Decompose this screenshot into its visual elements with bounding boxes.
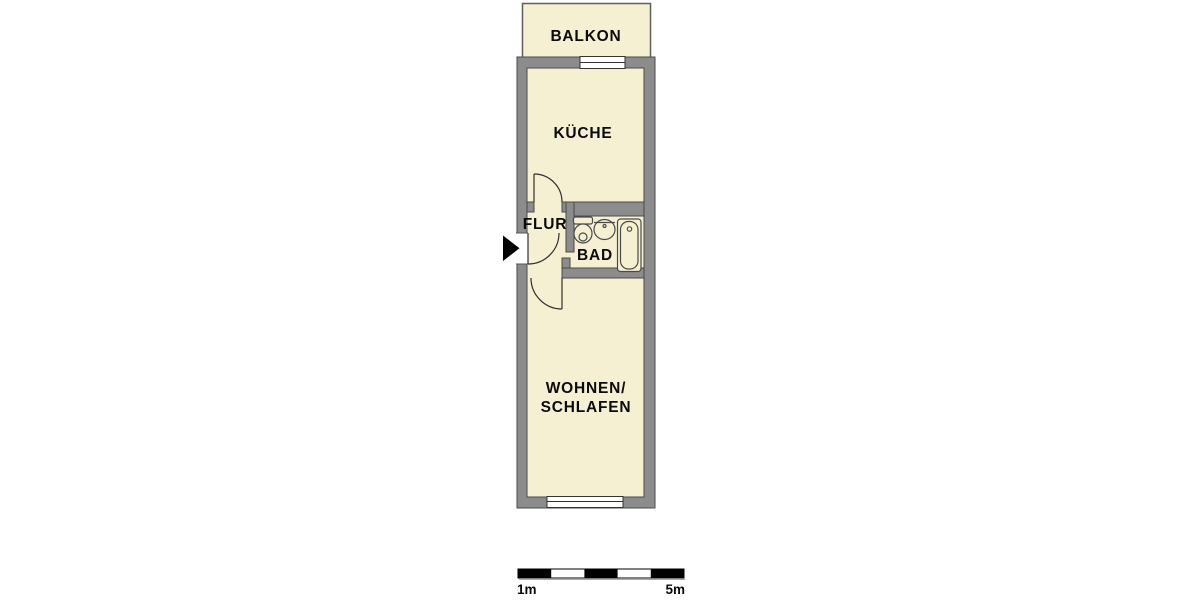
scale-segment — [651, 569, 684, 578]
scale-label-start: 1m — [517, 582, 537, 597]
balcony-door-window — [580, 57, 625, 69]
sink-icon — [594, 220, 615, 240]
balcony-label: BALKON — [550, 28, 621, 45]
wall-door-jamb — [562, 258, 570, 268]
living-label-line1: WOHNEN/ — [546, 380, 627, 397]
bathroom-label: BAD — [577, 247, 613, 264]
floorplan-svg: BALKON — [0, 0, 1200, 600]
hallway-label: FLUR — [523, 216, 568, 233]
scale-segment — [518, 569, 551, 578]
scale-segment — [584, 569, 617, 578]
scale-label-end: 5m — [665, 582, 685, 597]
living-window — [547, 497, 623, 508]
wall-bath-north — [566, 202, 644, 216]
kitchen-label: KÜCHE — [553, 125, 612, 142]
bathtub-icon — [618, 219, 642, 272]
wall-kitchen-hall-left — [527, 202, 534, 212]
floorplan-page: BALKON — [0, 0, 1200, 600]
living-label-line2: SCHLAFEN — [541, 399, 632, 416]
balcony-room: BALKON — [523, 4, 651, 58]
toilet-icon — [574, 217, 593, 243]
scale-bar: 1m 5m — [517, 569, 685, 597]
